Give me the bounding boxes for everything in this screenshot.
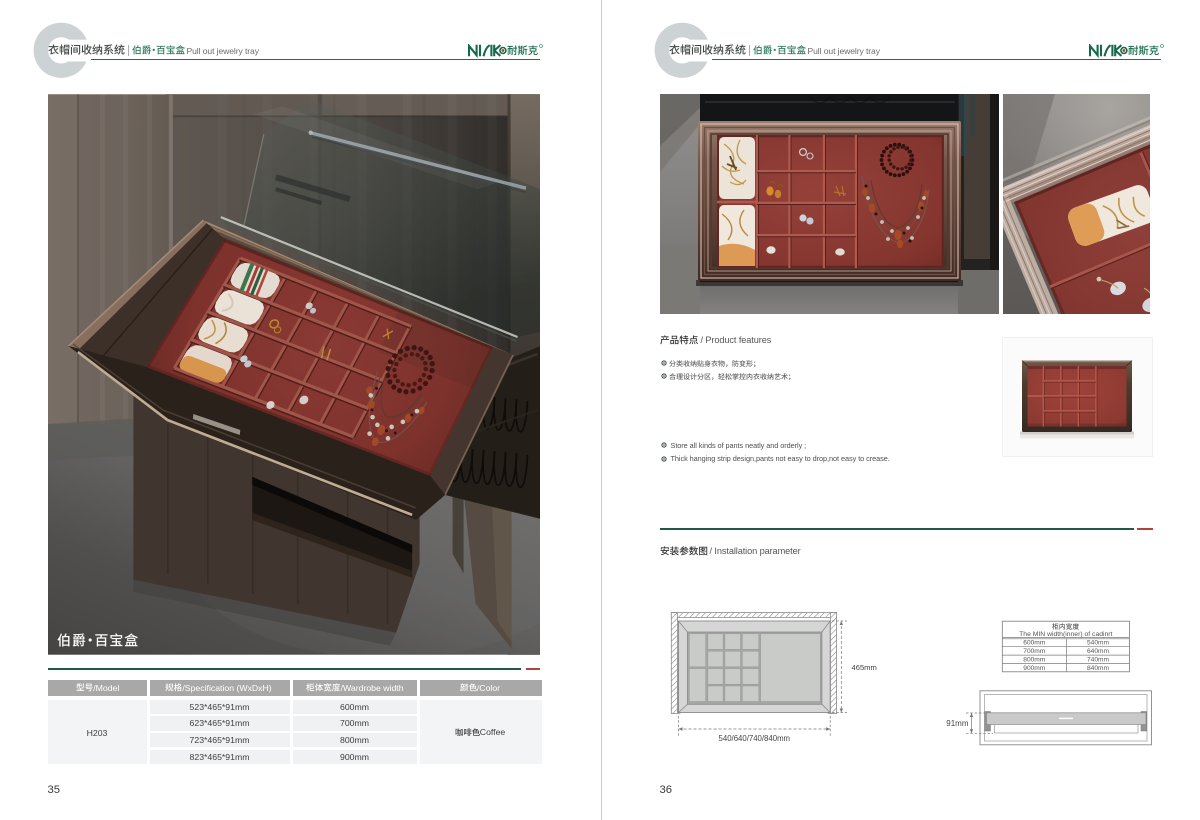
svg-text:540/640/740/840mm: 540/640/740/840mm — [719, 734, 791, 743]
svg-text:The MIN width(inner) of cadinr: The MIN width(inner) of cadinrt — [1019, 631, 1112, 638]
svg-text:540mm: 540mm — [1087, 640, 1109, 647]
svg-text:640mm: 640mm — [1087, 648, 1109, 655]
svg-text:91mm: 91mm — [946, 719, 969, 728]
svg-text:840mm: 840mm — [1087, 665, 1109, 672]
svg-text:600mm: 600mm — [1023, 640, 1045, 647]
svg-text:740mm: 740mm — [1087, 656, 1109, 663]
svg-text:800mm: 800mm — [1023, 656, 1045, 663]
svg-text:700mm: 700mm — [1023, 648, 1045, 655]
svg-text:465mm: 465mm — [852, 663, 877, 672]
svg-text:900mm: 900mm — [1023, 665, 1045, 672]
